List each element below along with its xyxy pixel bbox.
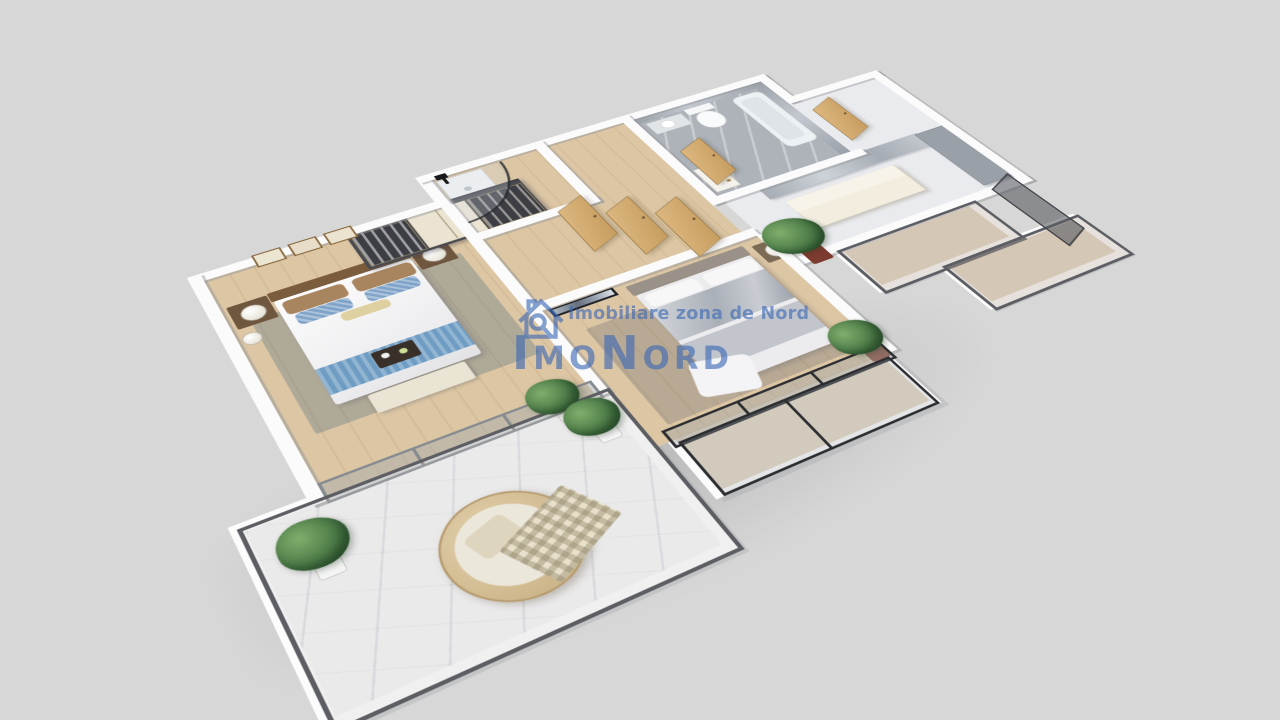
door-handle [642, 216, 646, 220]
floorplan-scene [0, 0, 1280, 720]
door-handle [843, 112, 847, 115]
glass-bay-mullion [784, 400, 832, 448]
door-handle [712, 154, 716, 157]
door-handle [692, 217, 696, 221]
door-handle [593, 214, 597, 218]
render-canvas: Imobiliare zona de Nord ImoNord [0, 0, 1280, 720]
apartment-plan [91, 33, 1280, 720]
